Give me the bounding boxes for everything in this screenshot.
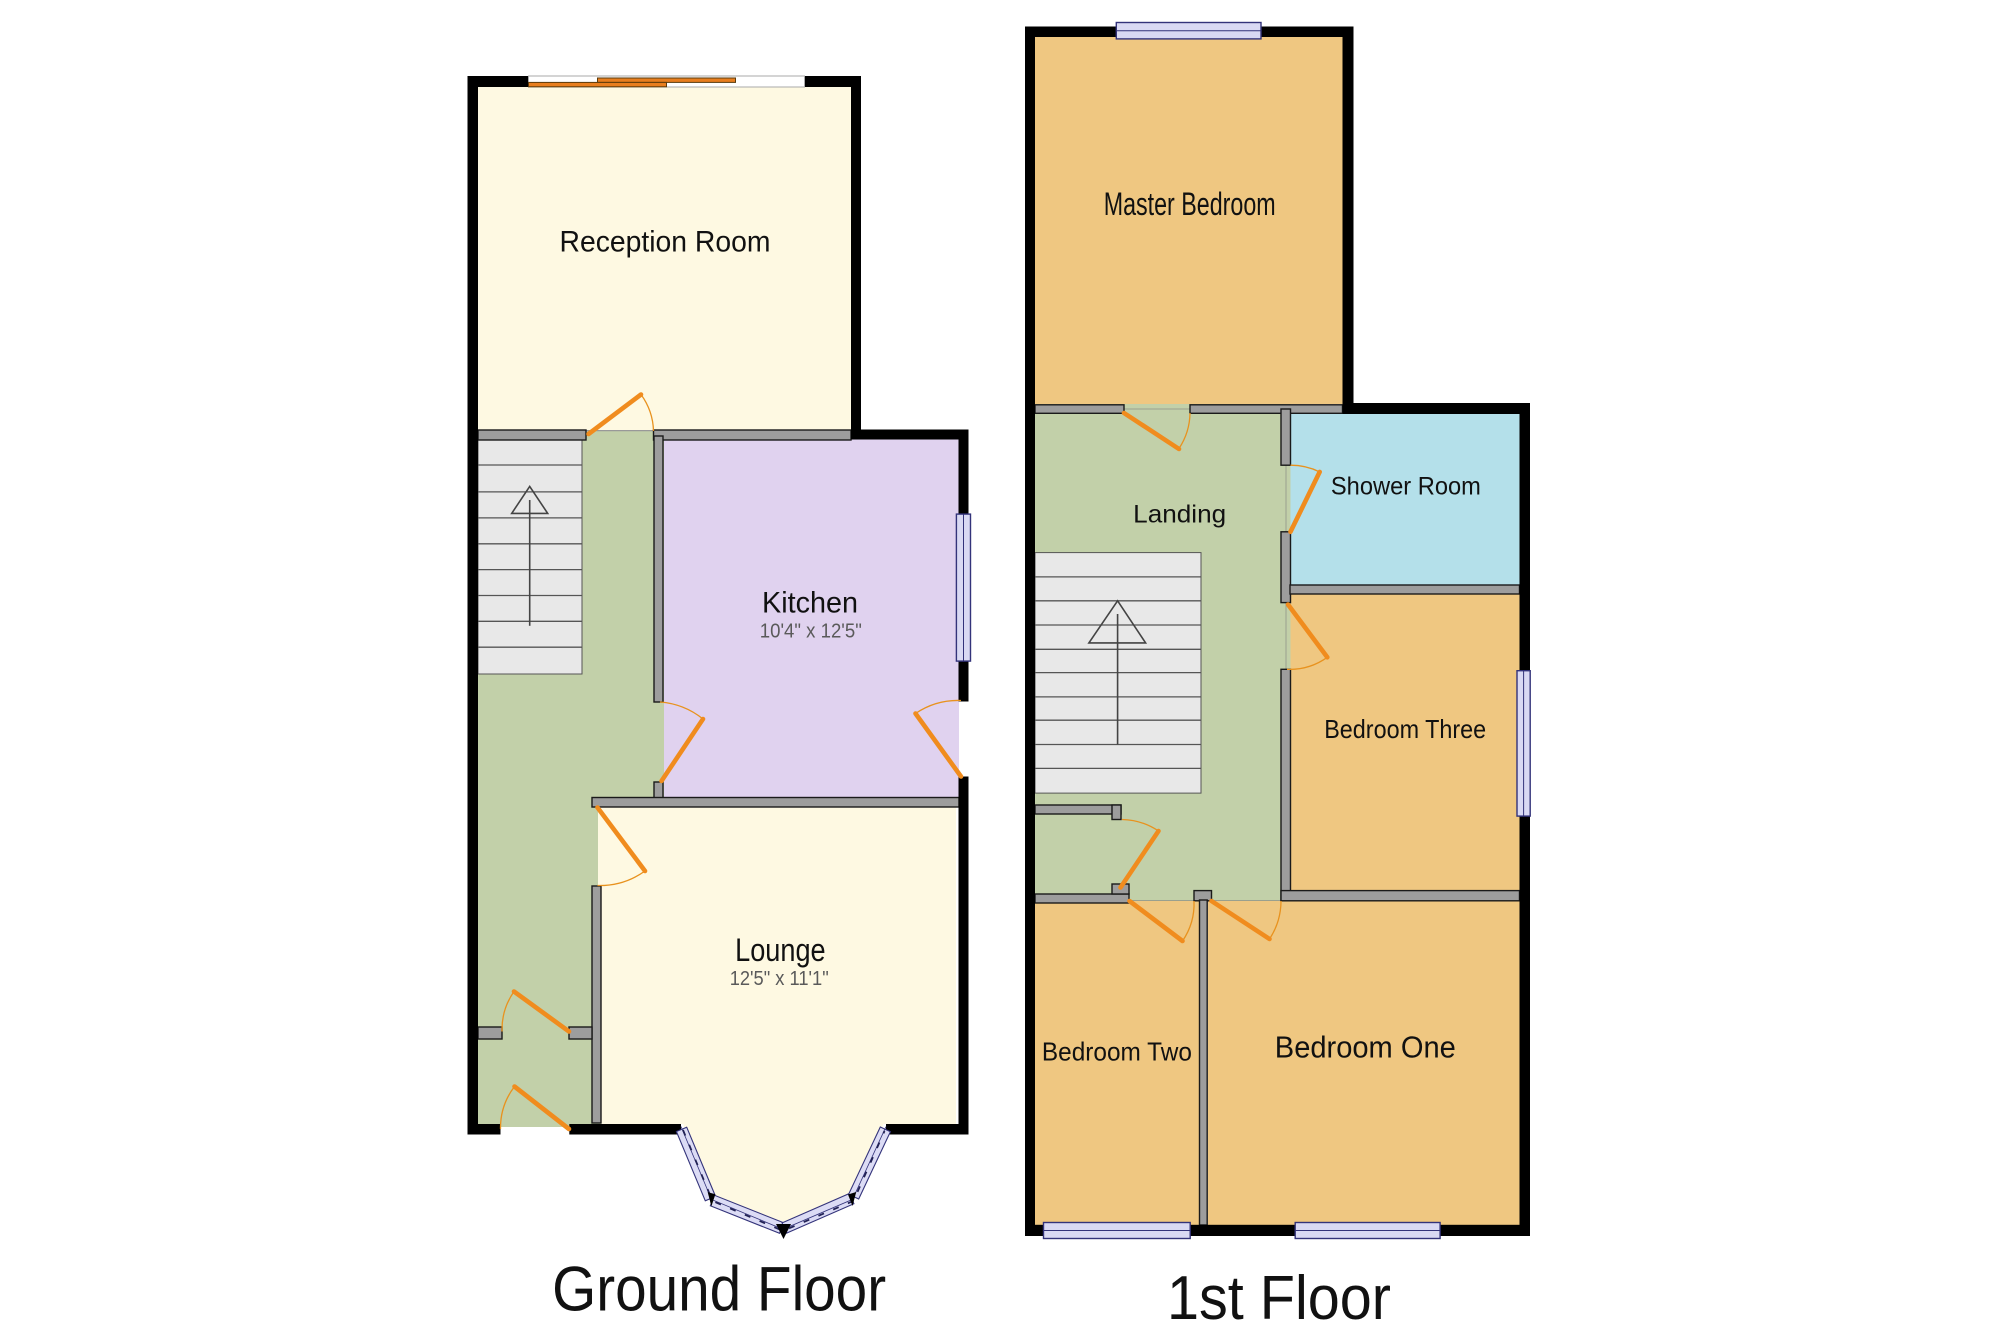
svg-text:Shower Room: Shower Room bbox=[1331, 472, 1481, 500]
svg-text:Bedroom Three: Bedroom Three bbox=[1324, 714, 1486, 744]
svg-text:Lounge: Lounge bbox=[735, 932, 826, 968]
svg-text:Bedroom One: Bedroom One bbox=[1275, 1029, 1456, 1064]
svg-text:Reception Room: Reception Room bbox=[560, 225, 771, 258]
svg-text:Landing: Landing bbox=[1133, 501, 1226, 529]
svg-text:Ground Floor: Ground Floor bbox=[552, 1254, 886, 1324]
svg-text:Kitchen: Kitchen bbox=[762, 587, 858, 620]
svg-text:Master Bedroom: Master Bedroom bbox=[1104, 186, 1276, 222]
svg-text:10'4" x 12'5": 10'4" x 12'5" bbox=[760, 620, 862, 642]
svg-text:1st Floor: 1st Floor bbox=[1167, 1264, 1391, 1333]
svg-text:Bedroom Two: Bedroom Two bbox=[1042, 1037, 1192, 1067]
svg-text:12'5" x 11'1": 12'5" x 11'1" bbox=[730, 968, 829, 990]
